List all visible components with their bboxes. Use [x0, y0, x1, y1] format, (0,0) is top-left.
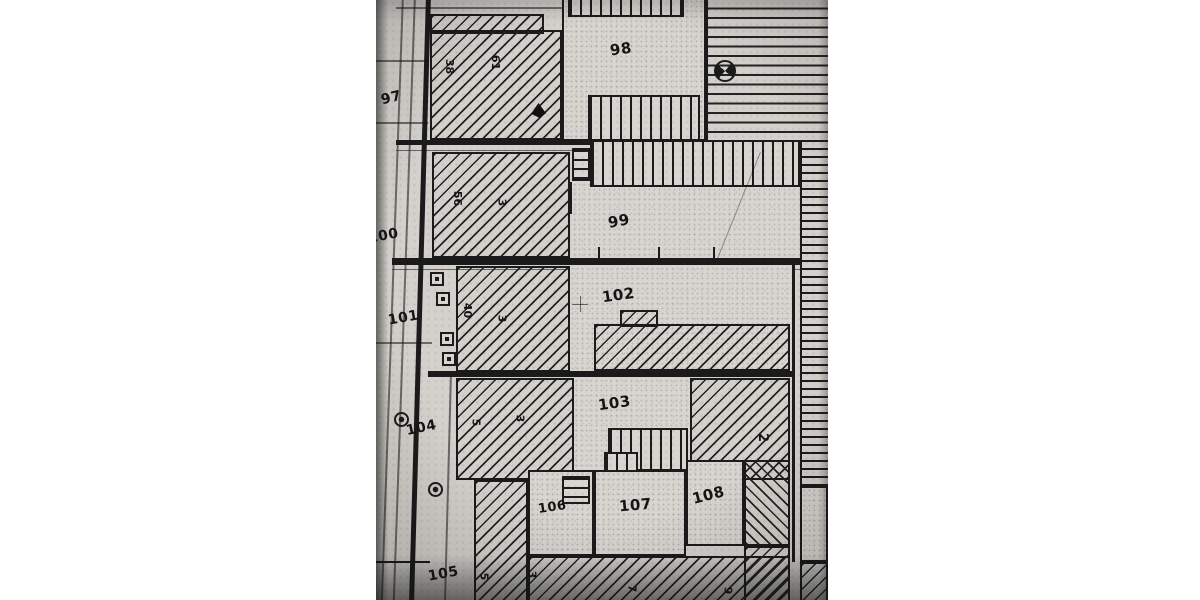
street-cross-line: [376, 342, 432, 344]
stairs-ladder: [562, 476, 590, 504]
hatched-building: [594, 324, 790, 371]
marker-dot: [447, 357, 451, 361]
boundary-tick: [598, 247, 600, 258]
building-number: 61: [489, 55, 502, 70]
round-tree-marker: [428, 482, 443, 497]
building-number: 3: [495, 315, 508, 323]
street-cross-line: [376, 561, 430, 563]
right-strip-boundary-line: [792, 258, 795, 562]
hatched-area: [744, 460, 790, 546]
square-boundary-marker: [442, 352, 456, 366]
hatched-area: [744, 546, 790, 600]
area-number-2: 2: [755, 433, 770, 442]
building-number: 40: [461, 303, 474, 318]
street-cross-line: [376, 122, 428, 124]
parcel-number-107: 107: [618, 495, 652, 516]
hatched-building: [456, 266, 570, 372]
marker-dot: [435, 277, 439, 281]
stairs-ladder: [568, 0, 684, 17]
boundary-tick: [658, 247, 660, 258]
building-number: 5: [477, 573, 490, 581]
quartered-circle-survey-marker: [714, 60, 736, 82]
building-number: 3: [525, 571, 538, 579]
right-strip-hatched-road: [800, 140, 828, 486]
building-number: 3: [513, 415, 526, 423]
stairs-ladder: [588, 95, 700, 141]
hatched-building: [430, 30, 562, 140]
square-boundary-marker: [436, 292, 450, 306]
square-boundary-marker: [440, 332, 454, 346]
stairs-ladder: [572, 148, 590, 181]
building-number: 9: [721, 587, 734, 595]
marker-dot: [441, 297, 445, 301]
street-cross-line: [376, 60, 428, 62]
stairs-ladder: [590, 140, 800, 187]
block-boundary-line: [392, 258, 828, 265]
parcel-number-99: 99: [607, 210, 632, 232]
hatched-area: [800, 562, 828, 600]
parcel-number-105: 105: [427, 563, 460, 584]
stairs-ladder: [604, 452, 638, 472]
parcel-number-100: 100: [376, 225, 400, 246]
marker-dot: [445, 337, 449, 341]
photo-viewer-canvas: 38 61 98 56 3 99 40 3: [0, 0, 1200, 600]
building-number: 5: [469, 419, 482, 427]
hatched-building: [456, 378, 574, 480]
hatched-area: [474, 480, 528, 600]
parcel-number-98: 98: [609, 39, 633, 60]
cross-grid-marker: [572, 296, 588, 312]
boundary-tick: [713, 247, 715, 258]
square-boundary-marker: [430, 272, 444, 286]
building-number: 7: [625, 585, 638, 593]
building-number: 38: [443, 59, 456, 74]
cadastral-map-photo: 38 61 98 56 3 99 40 3: [376, 0, 828, 600]
building-number: 56: [451, 191, 464, 206]
parcel-number-104: 104: [405, 417, 438, 439]
right-strip-parcel: [800, 486, 828, 562]
block-boundary-line: [428, 371, 794, 377]
building-number: 3: [495, 199, 508, 207]
